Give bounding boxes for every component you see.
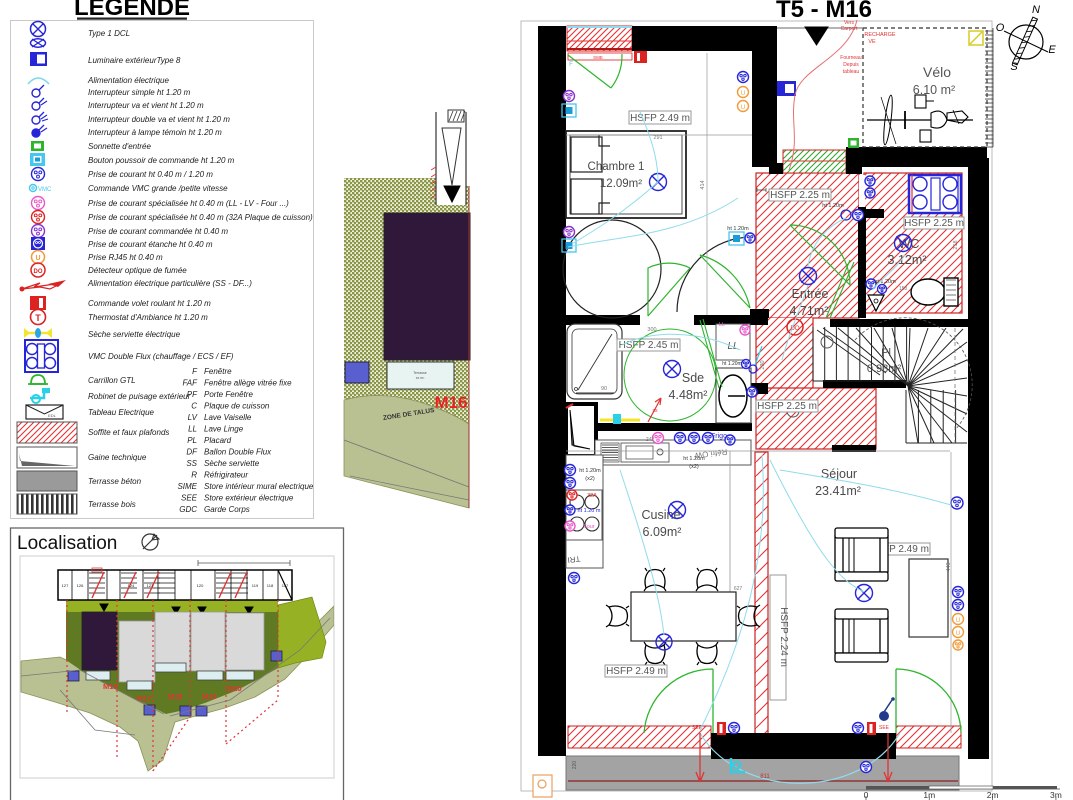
svg-text:F: F	[569, 62, 573, 68]
svg-text:HSFP 2.25 m: HSFP 2.25 m	[757, 401, 817, 412]
svg-text:FAF: FAF	[182, 379, 198, 388]
svg-text:Chambre 1: Chambre 1	[588, 161, 645, 173]
svg-text:VE: VE	[868, 39, 876, 45]
svg-text:119: 119	[252, 583, 259, 588]
svg-text:LV: LV	[188, 413, 198, 422]
svg-text:120: 120	[197, 583, 204, 588]
svg-text:Terrasse béton: Terrasse béton	[88, 477, 142, 486]
svg-text:4.71m²: 4.71m²	[790, 304, 829, 318]
svg-text:T5 - M16: T5 - M16	[776, 0, 872, 23]
svg-text:xx m²: xx m²	[416, 376, 425, 380]
svg-text:Interrupteur à lampe témoin ht: Interrupteur à lampe témoin ht 1.20 m	[88, 128, 222, 137]
svg-text:0.93m²: 0.93m²	[867, 363, 902, 375]
svg-text:Garde Corps: Garde Corps	[204, 505, 250, 514]
svg-text:ht 1.20m: ht 1.20m	[722, 361, 741, 367]
svg-text:811: 811	[760, 774, 770, 780]
svg-text:Prise de courant étanche ht 0.: Prise de courant étanche ht 0.40 m	[88, 240, 213, 249]
svg-text:Sde: Sde	[682, 371, 704, 385]
svg-text:SEE: SEE	[879, 725, 890, 731]
svg-text:6.09m²: 6.09m²	[643, 525, 682, 539]
svg-text:Entrée: Entrée	[792, 287, 829, 301]
svg-text:ht 1.20m: ht 1.20m	[683, 456, 705, 462]
svg-text:Store intérieur mural electriq: Store intérieur mural electrique	[204, 482, 314, 491]
svg-text:Bouton poussoir de commande ht: Bouton poussoir de commande ht 1.20 m	[88, 156, 235, 165]
svg-text:HSFP 2.49 m: HSFP 2.49 m	[630, 113, 690, 124]
svg-text:Gaine technique: Gaine technique	[88, 453, 147, 462]
svg-text:PL: PL	[187, 436, 197, 445]
svg-text:Store extérieur électrique: Store extérieur électrique	[204, 494, 294, 503]
svg-text:Détecteur optique de fumée: Détecteur optique de fumée	[88, 266, 187, 275]
svg-text:TRI: TRI	[567, 554, 581, 565]
svg-text:ht 1.20m: ht 1.20m	[727, 226, 749, 232]
svg-text:Porte Fenêtre: Porte Fenêtre	[204, 390, 253, 399]
svg-text:Interrupteur simple ht 1.20 m: Interrupteur simple ht 1.20 m	[88, 88, 191, 97]
svg-text:M16: M16	[103, 682, 118, 691]
svg-text:Four: Four	[583, 524, 594, 530]
svg-text:Sonnette d'entrée: Sonnette d'entrée	[88, 142, 151, 151]
svg-text:(x2): (x2)	[689, 464, 699, 470]
svg-text:218: 218	[953, 240, 959, 249]
svg-text:LL: LL	[719, 322, 725, 328]
svg-text:GDC: GDC	[179, 505, 197, 514]
svg-text:Sèche serviette électrique: Sèche serviette électrique	[88, 330, 181, 339]
svg-text:Thermostat d'Ambiance ht 1.20: Thermostat d'Ambiance ht 1.20 m	[88, 313, 208, 322]
svg-text:T: T	[35, 313, 41, 323]
svg-text:4.48m²: 4.48m²	[669, 388, 708, 402]
svg-text:Carrillon GTL: Carrillon GTL	[88, 376, 136, 385]
svg-text:Prise de courant spécialisée h: Prise de courant spécialisée ht 0.40 m (…	[88, 199, 289, 208]
svg-text:627: 627	[734, 586, 743, 592]
svg-text:DF: DF	[186, 448, 198, 457]
svg-text:Type 1 DCL: Type 1 DCL	[88, 29, 130, 38]
svg-text:HSFP 2.24 m: HSFP 2.24 m	[778, 607, 789, 667]
svg-text:Prise de courant ht 0.40 m / 1: Prise de courant ht 0.40 m / 1.20 m	[88, 170, 213, 179]
svg-text:Luminaire extérieurType 8: Luminaire extérieurType 8	[88, 56, 181, 65]
svg-text:Fourneau: Fourneau	[840, 55, 862, 61]
svg-text:M20: M20	[227, 684, 242, 693]
svg-text:32A: 32A	[587, 493, 597, 499]
svg-text:Prise de courant commandée ht: Prise de courant commandée ht 0.40 m	[88, 227, 228, 236]
svg-text:Commande VMC grande /petite vi: Commande VMC grande /petite vitesse	[88, 184, 228, 193]
svg-text:Carport: Carport	[841, 26, 858, 32]
svg-text:(x2): (x2)	[585, 476, 595, 482]
svg-text:ht 1.20 m: ht 1.20 m	[578, 508, 601, 514]
svg-text:VMC Double Flux (chauffage / E: VMC Double Flux (chauffage / ECS / EF)	[88, 352, 234, 361]
svg-text:Ballon Double Flux: Ballon Double Flux	[204, 448, 272, 457]
svg-text:R: R	[191, 471, 197, 480]
svg-text:PF: PF	[187, 390, 198, 399]
svg-text:Alimentation électrique: Alimentation électrique	[87, 76, 169, 85]
svg-text:118: 118	[267, 583, 274, 588]
svg-text:HSFP 2.25 m: HSFP 2.25 m	[770, 190, 830, 201]
svg-text:Sèche serviette: Sèche serviette	[204, 459, 260, 468]
svg-text:EDL: EDL	[48, 413, 57, 418]
svg-text:Fenêtre allège vitrée fixe: Fenêtre allège vitrée fixe	[204, 379, 292, 388]
svg-text:Plaque de cuisson: Plaque de cuisson	[204, 402, 270, 411]
svg-text:U: U	[35, 255, 40, 262]
svg-text:23.41m²: 23.41m²	[815, 484, 861, 498]
svg-text:300: 300	[647, 327, 656, 333]
svg-text:Prise de courant spécialisée h: Prise de courant spécialisée ht 0.40 m (…	[88, 213, 313, 222]
svg-text:M19: M19	[202, 692, 217, 701]
svg-text:LL: LL	[188, 425, 197, 434]
svg-text:Interrupteur double va et vien: Interrupteur double va et vient ht 1.20 …	[88, 115, 230, 124]
svg-text:126: 126	[77, 583, 84, 588]
svg-text:158: 158	[899, 286, 908, 292]
svg-text:Alimentation électrique partic: Alimentation électrique particulière (SS…	[87, 279, 252, 288]
svg-text:Réfrigirateur: Réfrigirateur	[204, 471, 248, 480]
svg-text:127: 127	[62, 583, 69, 588]
svg-text:Cusine: Cusine	[642, 508, 681, 522]
svg-text:ht 1.20m: ht 1.20m	[579, 468, 601, 474]
svg-text:U: U	[741, 105, 745, 111]
svg-text:N: N	[1032, 4, 1040, 16]
svg-text:Robinet de puisage extérieur: Robinet de puisage extérieur	[88, 392, 191, 401]
svg-text:SME: SME	[593, 55, 603, 60]
svg-text:Interrupteur va et vient ht 1.: Interrupteur va et vient ht 1.20 m	[88, 101, 204, 110]
svg-text:ss: ss	[653, 408, 659, 414]
svg-text:Fenêtre: Fenêtre	[204, 367, 232, 376]
svg-text:Soffite et faux plafonds: Soffite et faux plafonds	[88, 428, 169, 437]
svg-text:230: 230	[760, 360, 766, 369]
svg-text:M17: M17	[137, 694, 152, 703]
svg-text:SIME: SIME	[177, 482, 197, 491]
svg-text:Localisation: Localisation	[17, 533, 117, 554]
svg-text:90: 90	[601, 386, 607, 392]
svg-text:Placard: Placard	[204, 436, 232, 445]
svg-text:3.12m²: 3.12m²	[888, 253, 927, 267]
svg-text:Tableau Electrique: Tableau Electrique	[88, 408, 155, 417]
svg-text:291: 291	[653, 135, 662, 141]
svg-text:HSFP 2.49 m: HSFP 2.49 m	[606, 666, 666, 677]
svg-text:M18: M18	[168, 692, 183, 701]
svg-text:RECHARGE: RECHARGE	[864, 32, 896, 38]
svg-text:DO: DO	[34, 269, 43, 275]
svg-text:U: U	[741, 91, 745, 97]
svg-text:Terrasse bois: Terrasse bois	[88, 500, 136, 509]
svg-text:242: 242	[646, 437, 655, 443]
svg-text:Pl: Pl	[881, 347, 891, 359]
svg-text:12.09m²: 12.09m²	[600, 178, 642, 190]
svg-text:220: 220	[572, 761, 578, 770]
svg-text:HSFP 2.45 m: HSFP 2.45 m	[619, 340, 679, 351]
svg-text:S: S	[1010, 61, 1018, 73]
svg-text:Vélo: Vélo	[923, 64, 951, 80]
svg-text:U: U	[956, 631, 960, 637]
svg-text:123: 123	[147, 583, 154, 588]
svg-text:ht 1.20m: ht 1.20m	[822, 203, 844, 209]
svg-text:SS: SS	[186, 459, 197, 468]
svg-text:Lave Vaiselle: Lave Vaiselle	[204, 413, 252, 422]
svg-text:117: 117	[282, 583, 289, 588]
svg-text:414: 414	[700, 180, 706, 189]
svg-text:tableau: tableau	[843, 69, 860, 75]
svg-text:Séjour: Séjour	[821, 467, 857, 481]
svg-text:SEE: SEE	[181, 494, 198, 503]
svg-text:Depuis: Depuis	[843, 62, 859, 68]
svg-text:Lave Linge: Lave Linge	[204, 425, 244, 434]
svg-text:Prise RJ45 ht 0.40 m: Prise RJ45 ht 0.40 m	[88, 253, 163, 262]
svg-text:124: 124	[128, 583, 135, 588]
svg-text:Commande volet roulant ht 1.20: Commande volet roulant ht 1.20 m	[88, 299, 211, 308]
svg-text:O: O	[996, 22, 1005, 34]
svg-text:C: C	[191, 402, 197, 411]
svg-text:HSFP 2.25 m: HSFP 2.25 m	[904, 218, 964, 229]
svg-text:U: U	[956, 618, 960, 624]
svg-text:Terrasse: Terrasse	[413, 371, 426, 375]
svg-text:VMC: VMC	[38, 187, 52, 193]
svg-text:E: E	[1048, 44, 1056, 56]
